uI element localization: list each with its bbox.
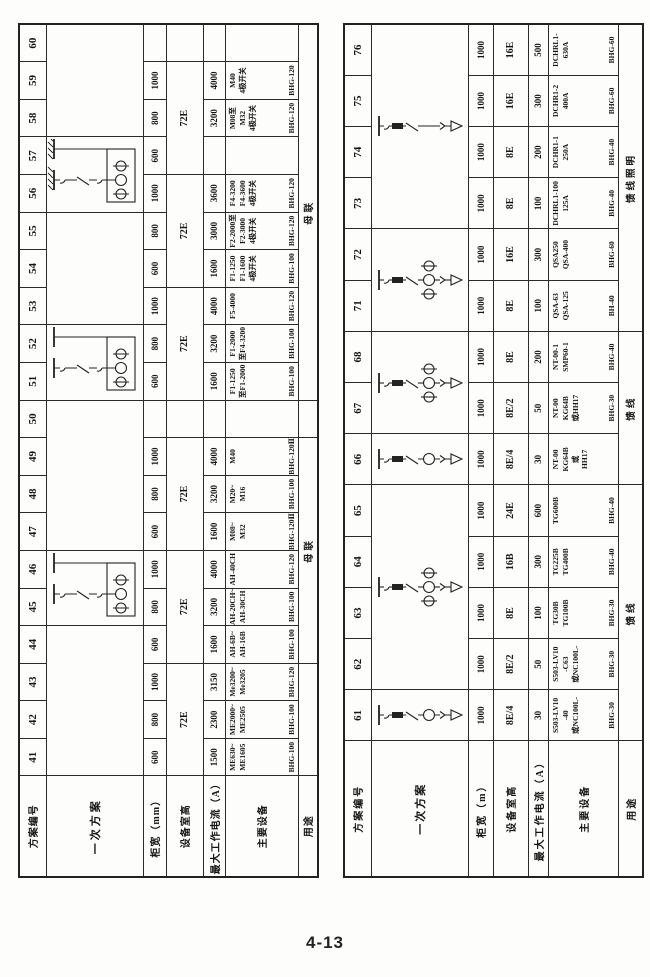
max-current-74: 200 xyxy=(528,127,548,178)
scheme-number-53: 53 xyxy=(19,287,46,325)
primary-scheme-cell-62 xyxy=(371,485,468,690)
main-equipment-56: F4-3200F4-36004极开关BHG-120 xyxy=(225,175,298,213)
max-current-73: 100 xyxy=(528,178,548,229)
usage-cell-51: 母联 xyxy=(298,24,318,400)
main-equipment-74: DCHR1-1250ABHG-40 xyxy=(548,127,618,178)
equipment-cell-content: NT-00-1SMP60-1BHG-40 xyxy=(549,332,617,382)
cabinet-width-76: 1000 xyxy=(468,24,493,75)
left-header-scheme-no: 方案编号 xyxy=(19,776,46,877)
max-current-55: 3000 xyxy=(203,212,225,250)
main-equipment-72: QSA250QSA-400BHG-60 xyxy=(548,229,618,280)
room-height-64: 16B xyxy=(493,536,528,587)
main-equipment-42: ME2000~ME2505BHG-100 xyxy=(225,701,298,739)
scheme-number-49: 49 xyxy=(19,438,46,476)
scheme-number-76: 76 xyxy=(344,24,371,75)
equipment-lines: M404极开关 xyxy=(228,62,248,99)
equipment-cell-content: M40BHG-120Ⅱ xyxy=(226,438,297,475)
room-height-54: 72E xyxy=(166,175,203,288)
equipment-model: BH-40 xyxy=(608,281,616,331)
equipment-lines: DCHR1-1250A xyxy=(551,127,571,177)
scheme-number-62: 62 xyxy=(344,639,371,690)
scheme-number-56: 56 xyxy=(19,175,46,213)
scheme-number-66: 66 xyxy=(344,434,371,485)
equipment-lines: NT-00KG64B或HH17 xyxy=(551,383,580,433)
scheme-number-43: 43 xyxy=(19,663,46,701)
scheme-number-57: 57 xyxy=(19,137,46,175)
right-header-scheme-no: 方案编号 xyxy=(344,741,371,877)
cabinet-width-67: 1000 xyxy=(468,383,493,434)
equipment-model: BHG-100 xyxy=(288,701,296,738)
scheme-number-58: 58 xyxy=(19,99,46,137)
equipment-cell-content: M20~M16BHG-100 xyxy=(226,476,297,513)
usage-cell-44: 母联 xyxy=(298,438,318,664)
cabinet-width-65: 1000 xyxy=(468,485,493,536)
equipment-lines: F4-3200F4-36004极开关 xyxy=(228,175,257,212)
cabinet-width-73: 1000 xyxy=(468,178,493,229)
equipment-cell-content xyxy=(226,25,297,61)
scheme-number-63: 63 xyxy=(344,587,371,638)
equipment-lines: F2-2000至F2-30004极开关 xyxy=(228,213,257,250)
scheme-number-51: 51 xyxy=(19,362,46,400)
room-height-47: 72E xyxy=(166,438,203,551)
scheme-number-74: 74 xyxy=(344,127,371,178)
cabinet-width-49: 1000 xyxy=(143,438,166,476)
usage-cell-61: 馈线 xyxy=(618,485,643,741)
left-header-max-current: 最大工作电流（A） xyxy=(203,776,225,877)
max-current-75: 300 xyxy=(528,75,548,126)
equipment-lines: QSA250QSA-400 xyxy=(551,229,571,279)
max-current-58: 3200 xyxy=(203,99,225,137)
cabinet-width-74: 1000 xyxy=(468,127,493,178)
main-equipment-45: AH-20CH~AH-30CHBHG-100 xyxy=(225,588,298,626)
equipment-lines: ME2000~ME2505 xyxy=(228,701,248,738)
room-height-71: 8E xyxy=(493,280,528,331)
primary-scheme-cell-71 xyxy=(371,229,468,331)
main-equipment-59: M404极开关BHG-120 xyxy=(225,62,298,100)
usage-cell-41 xyxy=(298,663,318,776)
left-scheme-table-rotated: 方案编号414243444546474849505152535455565758… xyxy=(18,25,315,878)
main-equipment-53: F5-4000BHG-120 xyxy=(225,287,298,325)
equipment-cell-content: S503-LV10-40或NC100L-BHG-30 xyxy=(549,690,617,740)
left-header-cabinet-width: 柜宽（mm） xyxy=(143,776,166,877)
room-height-74: 8E xyxy=(493,127,528,178)
max-current-57 xyxy=(203,137,225,175)
equipment-lines: Me3200~Me3205 xyxy=(228,664,248,701)
equipment-lines: F5-4000 xyxy=(228,288,238,325)
cabinet-width-46: 1000 xyxy=(143,550,166,588)
equipment-model: BHG-40 xyxy=(608,127,616,177)
scheme-number-52: 52 xyxy=(19,325,46,363)
equipment-model: BHG-120 xyxy=(288,213,296,250)
equipment-cell-content: M08~M32BHG-120Ⅱ xyxy=(226,513,297,550)
feeder-cts-diagram xyxy=(372,334,463,432)
cabinet-width-66: 1000 xyxy=(468,434,493,485)
equipment-model: BHG-40 xyxy=(608,178,616,228)
cabinet-width-48: 800 xyxy=(143,475,166,513)
max-current-72: 300 xyxy=(528,229,548,280)
left-header-primary-scheme: 一次方案 xyxy=(46,776,143,877)
scheme-number-75: 75 xyxy=(344,75,371,126)
equipment-cell-content: Me3200~Me3205BHG-120 xyxy=(226,664,297,701)
max-current-68: 200 xyxy=(528,331,548,382)
room-height-51: 72E xyxy=(166,287,203,400)
max-current-54: 1600 xyxy=(203,250,225,288)
cabinet-width-52: 800 xyxy=(143,325,166,363)
main-equipment-66: NT-00KG64B或HH17 xyxy=(548,434,618,485)
equipment-lines: DCHR1-2400A xyxy=(551,76,571,126)
equipment-cell-content: ME630~ME1605BHG-100 xyxy=(226,739,297,776)
cabinet-width-61: 1000 xyxy=(468,690,493,741)
primary-scheme-cell-67 xyxy=(371,331,468,433)
right-header-primary-scheme: 一次方案 xyxy=(371,741,468,877)
right-header-main-equipment: 主要设备 xyxy=(548,741,618,877)
cabinet-width-64: 1000 xyxy=(468,536,493,587)
cabinet-width-58: 800 xyxy=(143,99,166,137)
equipment-lines: TG600B xyxy=(551,485,561,535)
equipment-model: BHG-120 xyxy=(288,288,296,325)
feeder-plain-diagram xyxy=(372,26,463,227)
room-height-68: 8E xyxy=(493,331,528,382)
equipment-cell-content: AH-6B~AH-16BBHG-100 xyxy=(226,626,297,663)
primary-scheme-cell-47 xyxy=(46,400,143,550)
usage-cell-66: 馈线 xyxy=(618,331,643,485)
equipment-cell-content: ME2000~ME2505BHG-100 xyxy=(226,701,297,738)
primary-scheme-cell-73 xyxy=(371,24,468,229)
max-current-50 xyxy=(203,400,225,438)
equipment-lines: TG225BTG400B xyxy=(551,537,571,587)
room-height-60 xyxy=(166,24,203,62)
equipment-cell-content: F1-1250F1-16004极开关BHG-100 xyxy=(226,250,297,287)
room-height-61: 8E/4 xyxy=(493,690,528,741)
bus-tie-earthed-diagram xyxy=(47,139,138,210)
scheme-number-41: 41 xyxy=(19,738,46,776)
primary-scheme-cell-53 xyxy=(46,212,143,325)
equipment-model: BHG-60 xyxy=(608,229,616,279)
equipment-lines: ME630~ME1605 xyxy=(228,739,248,776)
equipment-cell-content: AH-40CHBHG-120 xyxy=(226,551,297,588)
max-current-60 xyxy=(203,24,225,62)
cabinet-width-47: 600 xyxy=(143,513,166,551)
room-height-41: 72E xyxy=(166,663,203,776)
primary-scheme-cell-45 xyxy=(46,550,143,625)
cabinet-width-56: 1000 xyxy=(143,175,166,213)
primary-scheme-cell-41 xyxy=(46,626,143,776)
feeder-cts-diagram xyxy=(372,231,463,329)
cabinet-width-71: 1000 xyxy=(468,280,493,331)
max-current-43: 3150 xyxy=(203,663,225,701)
right-header-cabinet-width: 柜宽（m） xyxy=(468,741,493,877)
scheme-number-71: 71 xyxy=(344,280,371,331)
room-height-44: 72E xyxy=(166,550,203,663)
scanned-handbook-page: { "page": { "number": "4-13" }, "left_ta… xyxy=(0,0,650,977)
max-current-46: 4000 xyxy=(203,550,225,588)
equipment-cell-content: M404极开关BHG-120 xyxy=(226,62,297,99)
max-current-56: 3600 xyxy=(203,175,225,213)
equipment-model: BHG-100 xyxy=(288,739,296,776)
feeder-cts-diagram xyxy=(372,487,463,688)
equipment-model: BHG-120 xyxy=(288,664,296,701)
equipment-lines: F1-2000至F4-3200 xyxy=(228,325,248,362)
scheme-number-46: 46 xyxy=(19,550,46,588)
scheme-number-72: 72 xyxy=(344,229,371,280)
right-table-logical-view: 方案编号6162636465666768717273747576一次方案柜宽（m… xyxy=(343,25,640,878)
equipment-model: BHG-60 xyxy=(608,25,616,75)
cabinet-width-63: 1000 xyxy=(468,587,493,638)
main-equipment-60 xyxy=(225,24,298,62)
equipment-lines: M08至M324极开关 xyxy=(228,100,257,137)
left-header-main-equipment: 主要设备 xyxy=(225,776,298,877)
main-equipment-52: F1-2000至F4-3200BHG-100 xyxy=(225,325,298,363)
main-equipment-67: NT-00KG64B或HH17BHG-30 xyxy=(548,383,618,434)
equipment-lines: NT-00KG64B或HH17 xyxy=(551,434,590,484)
bus-tie-diagram xyxy=(47,327,138,398)
equipment-lines: AH-40CH xyxy=(228,551,238,588)
scheme-number-45: 45 xyxy=(19,588,46,626)
equipment-lines: AH-20CH~AH-30CH xyxy=(228,589,248,626)
max-current-61: 30 xyxy=(528,690,548,741)
max-current-44: 1600 xyxy=(203,626,225,664)
max-current-49: 4000 xyxy=(203,438,225,476)
right-header-usage: 用途 xyxy=(618,741,643,877)
equipment-model: BHG-100 xyxy=(288,325,296,362)
scheme-number-73: 73 xyxy=(344,178,371,229)
scheme-number-44: 44 xyxy=(19,626,46,664)
cabinet-width-45: 800 xyxy=(143,588,166,626)
main-equipment-49: M40BHG-120Ⅱ xyxy=(225,438,298,476)
main-equipment-71: QSA-63QSA-125BH-40 xyxy=(548,280,618,331)
usage-cell-71: 馈线照明 xyxy=(618,24,643,331)
max-current-48: 3200 xyxy=(203,475,225,513)
main-equipment-44: AH-6B~AH-16BBHG-100 xyxy=(225,626,298,664)
cabinet-width-54: 600 xyxy=(143,250,166,288)
equipment-cell-content: F1-2000至F4-3200BHG-100 xyxy=(226,325,297,362)
equipment-lines: DCHRL1-100125A xyxy=(551,178,571,228)
scheme-number-61: 61 xyxy=(344,690,371,741)
scheme-number-47: 47 xyxy=(19,513,46,551)
equipment-lines: AH-6B~AH-16B xyxy=(228,626,248,663)
equipment-model: BHG-120Ⅱ xyxy=(288,438,296,475)
equipment-model: BHG-30 xyxy=(608,690,616,740)
equipment-cell-content: DCHRL1-630ABHG-60 xyxy=(549,25,617,75)
main-equipment-48: M20~M16BHG-100 xyxy=(225,475,298,513)
primary-scheme-cell-56 xyxy=(46,137,143,212)
equipment-cell-content: NT-00KG64B或HH17BHG-30 xyxy=(549,383,617,433)
equipment-model: BHG-40 xyxy=(608,332,616,382)
equipment-cell-content: DCHR1-2400ABHG-60 xyxy=(549,76,617,126)
cabinet-width-57: 600 xyxy=(143,137,166,175)
scheme-number-60: 60 xyxy=(19,24,46,62)
equipment-model: BHG-120Ⅱ xyxy=(288,513,296,550)
cabinet-width-43: 1000 xyxy=(143,663,166,701)
cabinet-width-55: 800 xyxy=(143,212,166,250)
equipment-model: BHG-100 xyxy=(288,626,296,663)
main-equipment-43: Me3200~Me3205BHG-120 xyxy=(225,663,298,701)
equipment-cell-content: DCHRL1-100125ABHG-40 xyxy=(549,178,617,228)
equipment-cell-content: F1-1250至F1-2000BHG-100 xyxy=(226,363,297,400)
cabinet-width-72: 1000 xyxy=(468,229,493,280)
main-equipment-61: S503-LV10-40或NC100L-BHG-30 xyxy=(548,690,618,741)
cabinet-width-75: 1000 xyxy=(468,75,493,126)
main-equipment-68: NT-00-1SMP60-1BHG-40 xyxy=(548,331,618,382)
equipment-model: BHG-100 xyxy=(288,363,296,400)
equipment-cell-content xyxy=(226,401,297,438)
max-current-42: 2300 xyxy=(203,701,225,739)
primary-scheme-cell-66 xyxy=(371,434,468,485)
equipment-model: BHG-100 xyxy=(288,250,296,287)
max-current-76: 500 xyxy=(528,24,548,75)
primary-scheme-cell-51 xyxy=(46,325,143,400)
left-header-usage: 用途 xyxy=(298,776,318,877)
primary-scheme-cell-58 xyxy=(46,24,143,137)
feeder-meter-diagram xyxy=(372,436,463,483)
max-current-66: 30 xyxy=(528,434,548,485)
max-current-65: 600 xyxy=(528,485,548,536)
cabinet-width-42: 800 xyxy=(143,701,166,739)
equipment-cell-content: NT-00KG64B或HH17 xyxy=(549,434,617,484)
equipment-model: BHG-100 xyxy=(288,476,296,513)
max-current-53: 4000 xyxy=(203,287,225,325)
main-equipment-50 xyxy=(225,400,298,438)
room-height-76: 16E xyxy=(493,24,528,75)
usage-cell-50 xyxy=(298,400,318,438)
main-equipment-73: DCHRL1-100125ABHG-40 xyxy=(548,178,618,229)
cabinet-width-59: 1000 xyxy=(143,62,166,100)
page-number: 4-13 xyxy=(0,933,650,953)
equipment-lines: S503-LV10-40或NC100L- xyxy=(551,690,580,740)
feeder-meter-diagram xyxy=(372,692,463,739)
equipment-model: BHG-40 xyxy=(608,485,616,535)
scheme-number-59: 59 xyxy=(19,62,46,100)
main-equipment-55: F2-2000至F2-30004极开关BHG-120 xyxy=(225,212,298,250)
right-header-max-current: 最大工作电流（A） xyxy=(528,741,548,877)
room-height-72: 16E xyxy=(493,229,528,280)
cabinet-width-68: 1000 xyxy=(468,331,493,382)
right-scheme-table-rotated: 方案编号6162636465666768717273747576一次方案柜宽（m… xyxy=(343,25,640,878)
room-height-62: 8E/2 xyxy=(493,639,528,690)
main-equipment-57 xyxy=(225,137,298,175)
equipment-cell-content: F4-3200F4-36004极开关BHG-120 xyxy=(226,175,297,212)
cabinet-width-41: 600 xyxy=(143,738,166,776)
equipment-lines: S503-LV10-C63或NC100L- xyxy=(551,639,580,689)
equipment-cell-content: TG225BTG400BBHG-40 xyxy=(549,537,617,587)
scheme-number-48: 48 xyxy=(19,475,46,513)
room-height-73: 8E xyxy=(493,178,528,229)
max-current-47: 1600 xyxy=(203,513,225,551)
right-header-room-height: 设备室高 xyxy=(493,741,528,877)
main-equipment-54: F1-1250F1-16004极开关BHG-100 xyxy=(225,250,298,288)
equipment-lines: M40 xyxy=(228,438,238,475)
equipment-cell-content: TG30BTG100BBHG-30 xyxy=(549,588,617,638)
cabinet-width-44: 600 xyxy=(143,626,166,664)
cabinet-width-50 xyxy=(143,400,166,438)
room-height-66: 8E/4 xyxy=(493,434,528,485)
equipment-model: BHG-60 xyxy=(608,76,616,126)
equipment-model: BHG-30 xyxy=(608,383,616,433)
left-table-logical-view: 方案编号414243444546474849505152535455565758… xyxy=(18,25,315,878)
cabinet-width-60 xyxy=(143,24,166,62)
max-current-62: 50 xyxy=(528,639,548,690)
equipment-cell-content: QSA-63QSA-125BH-40 xyxy=(549,281,617,331)
room-height-75: 16E xyxy=(493,75,528,126)
scheme-number-55: 55 xyxy=(19,212,46,250)
equipment-model: BHG-120 xyxy=(288,100,296,137)
max-current-41: 1500 xyxy=(203,738,225,776)
room-height-67: 8E/2 xyxy=(493,383,528,434)
scheme-number-42: 42 xyxy=(19,701,46,739)
room-height-65: 24E xyxy=(493,485,528,536)
equipment-cell-content: QSA250QSA-400BHG-60 xyxy=(549,229,617,279)
equipment-lines: M08~M32 xyxy=(228,513,248,550)
cabinet-width-51: 600 xyxy=(143,362,166,400)
room-height-63: 8E xyxy=(493,587,528,638)
left-header-room-height: 设备室高 xyxy=(166,776,203,877)
scheme-number-54: 54 xyxy=(19,250,46,288)
equipment-cell-content: TG600BBHG-40 xyxy=(549,485,617,535)
equipment-lines: DCHRL1-630A xyxy=(551,25,571,75)
scheme-table-61-76: 方案编号6162636465666768717273747576一次方案柜宽（m… xyxy=(343,23,644,878)
max-current-67: 50 xyxy=(528,383,548,434)
equipment-cell-content: F5-4000BHG-120 xyxy=(226,288,297,325)
main-equipment-51: F1-1250至F1-2000BHG-100 xyxy=(225,362,298,400)
primary-scheme-cell-61 xyxy=(371,690,468,741)
equipment-cell-content: AH-20CH~AH-30CHBHG-100 xyxy=(226,589,297,626)
equipment-model: BHG-40 xyxy=(608,537,616,587)
scheme-number-67: 67 xyxy=(344,383,371,434)
cabinet-width-62: 1000 xyxy=(468,639,493,690)
main-equipment-65: TG600BBHG-40 xyxy=(548,485,618,536)
equipment-model: BHG-30 xyxy=(608,639,616,689)
equipment-model: BHG-120 xyxy=(288,175,296,212)
max-current-71: 100 xyxy=(528,280,548,331)
equipment-cell-content: M08至M324极开关BHG-120 xyxy=(226,100,297,137)
equipment-cell-content: DCHR1-1250ABHG-40 xyxy=(549,127,617,177)
cabinet-width-53: 1000 xyxy=(143,287,166,325)
max-current-64: 300 xyxy=(528,536,548,587)
equipment-model: BHG-120 xyxy=(288,62,296,99)
room-height-50 xyxy=(166,400,203,438)
max-current-59: 4000 xyxy=(203,62,225,100)
main-equipment-64: TG225BTG400BBHG-40 xyxy=(548,536,618,587)
equipment-lines: M20~M16 xyxy=(228,476,248,513)
main-equipment-76: DCHRL1-630ABHG-60 xyxy=(548,24,618,75)
max-current-52: 3200 xyxy=(203,325,225,363)
main-equipment-47: M08~M32BHG-120Ⅱ xyxy=(225,513,298,551)
equipment-lines: F1-1250F1-16004极开关 xyxy=(228,250,257,287)
equipment-cell-content: S503-LV10-C63或NC100L-BHG-30 xyxy=(549,639,617,689)
max-current-45: 3200 xyxy=(203,588,225,626)
equipment-model: BHG-30 xyxy=(608,588,616,638)
bus-tie-diagram xyxy=(47,553,138,624)
main-equipment-62: S503-LV10-C63或NC100L-BHG-30 xyxy=(548,639,618,690)
equipment-model: BHG-100 xyxy=(288,589,296,626)
equipment-cell-content xyxy=(226,137,297,174)
scheme-table-41-60: 方案编号414243444546474849505152535455565758… xyxy=(18,23,319,878)
equipment-lines: F1-1250至F1-2000 xyxy=(228,363,248,400)
equipment-lines: TG30BTG100B xyxy=(551,588,571,638)
scheme-number-64: 64 xyxy=(344,536,371,587)
max-current-51: 1600 xyxy=(203,362,225,400)
equipment-lines: NT-00-1SMP60-1 xyxy=(551,332,571,382)
equipment-cell-content: F2-2000至F2-30004极开关BHG-120 xyxy=(226,213,297,250)
main-equipment-41: ME630~ME1605BHG-100 xyxy=(225,738,298,776)
scheme-number-65: 65 xyxy=(344,485,371,536)
main-equipment-63: TG30BTG100BBHG-30 xyxy=(548,587,618,638)
main-equipment-58: M08至M324极开关BHG-120 xyxy=(225,99,298,137)
max-current-63: 100 xyxy=(528,587,548,638)
scheme-number-50: 50 xyxy=(19,400,46,438)
main-equipment-46: AH-40CHBHG-120 xyxy=(225,550,298,588)
equipment-model: BHG-120 xyxy=(288,551,296,588)
